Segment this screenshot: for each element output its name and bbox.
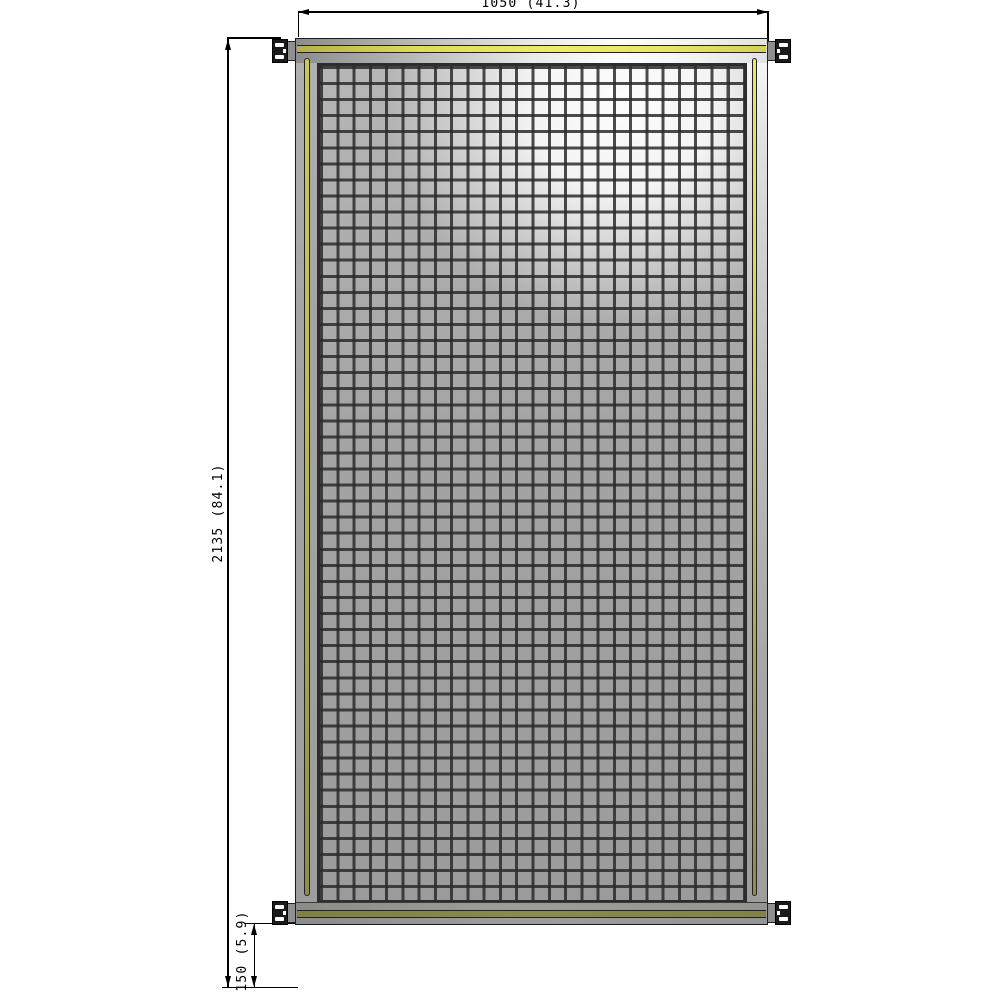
extension-line [298, 11, 300, 37]
clamp-pin [283, 49, 286, 53]
yellow-stripe-left [304, 58, 310, 896]
dimension-width-label: 1050 (41.3) [431, 0, 631, 11]
dim-arrow-left-icon [298, 9, 309, 15]
clamp-slot [275, 905, 284, 909]
dimension-floor-label: 150 (5.9) [236, 851, 250, 1000]
clamp-slot [779, 905, 788, 909]
dimension-height-label: 2135 (84.1) [212, 413, 226, 613]
clamp-slot [275, 917, 284, 921]
wire-mesh [317, 63, 747, 903]
mounting-clamp-icon [767, 901, 791, 925]
drawing-canvas: 1050 (41.3) 2135 (84.1) 150 (5.9) [0, 0, 1000, 1000]
clamp-slot [779, 43, 788, 47]
clamp-pin [283, 911, 286, 915]
panel-right-frame [747, 63, 767, 903]
olive-stripe-bottom [297, 910, 766, 918]
dim-arrow-right-icon [757, 9, 768, 15]
clamp-plate [287, 903, 296, 923]
clamp-slot [779, 917, 788, 921]
yellow-stripe-right [752, 58, 757, 896]
mounting-clamp-icon [272, 39, 296, 63]
clamp-slot [275, 55, 284, 59]
clamp-slot [779, 55, 788, 59]
dimension-line [227, 38, 229, 988]
clamp-pin [777, 911, 780, 915]
dim-arrow-down-icon [225, 976, 231, 987]
clamp-slot [275, 43, 284, 47]
dimension-line [298, 11, 768, 13]
dim-arrow-up-icon [251, 924, 257, 935]
dim-arrow-up-icon [225, 39, 231, 50]
yellow-stripe-top [297, 45, 766, 53]
mounting-clamp-icon [767, 39, 791, 63]
guard-panel [295, 38, 768, 925]
clamp-pin [777, 49, 780, 53]
dim-arrow-down-icon [251, 976, 257, 987]
clamp-plate [287, 41, 296, 61]
ground-reference-line [222, 987, 298, 989]
mounting-clamp-icon [272, 901, 296, 925]
